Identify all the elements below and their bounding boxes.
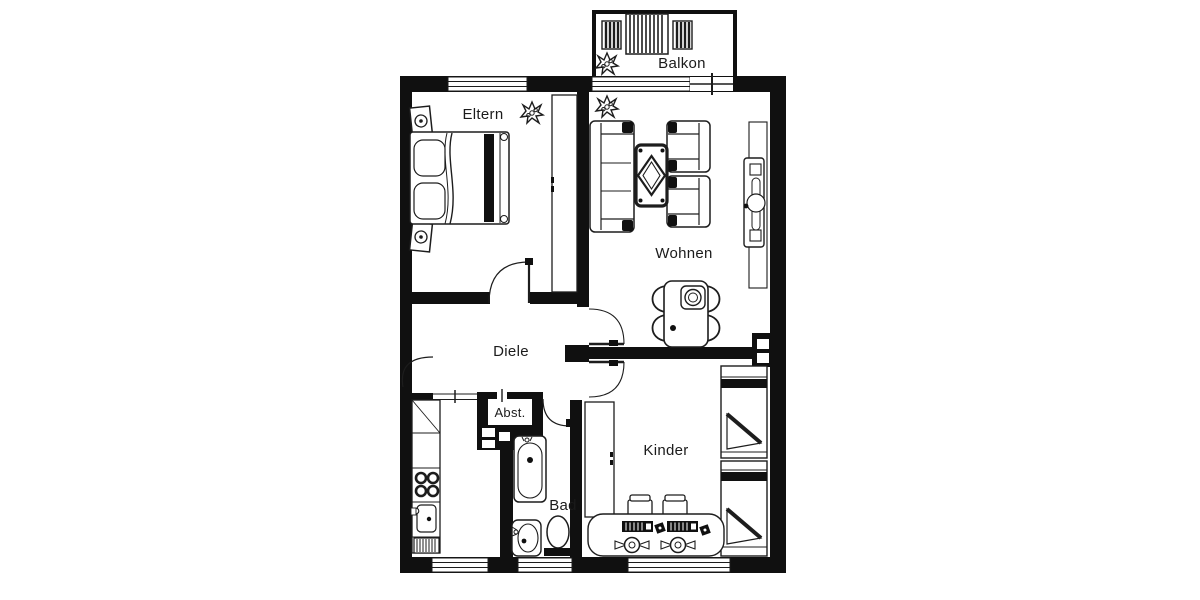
floorplan-drawing: Balkon bbox=[0, 0, 1200, 600]
window-kueche bbox=[432, 558, 488, 572]
balcony-table bbox=[626, 14, 668, 54]
speaker-icon bbox=[410, 222, 433, 252]
window-bad bbox=[518, 558, 572, 572]
room-kinder: Kinder bbox=[585, 366, 767, 556]
armchair bbox=[667, 176, 710, 227]
wardrobe bbox=[551, 95, 577, 292]
dish-rack bbox=[414, 538, 439, 553]
washbasin bbox=[512, 520, 541, 556]
floorplan: Balkon bbox=[0, 0, 1200, 600]
balcony-chair-right bbox=[673, 21, 692, 49]
window-wohnen bbox=[592, 77, 690, 91]
plant-icon bbox=[521, 102, 543, 123]
room-label-bad: Bad bbox=[549, 497, 577, 514]
armchair bbox=[667, 121, 710, 172]
kinder-bed-2 bbox=[721, 461, 767, 556]
keyboard-icon bbox=[667, 521, 698, 532]
room-wohnen: Wohnen bbox=[590, 96, 767, 347]
door-bad bbox=[543, 399, 574, 427]
room-kueche bbox=[411, 400, 440, 553]
door-kinder bbox=[589, 360, 624, 397]
sofa bbox=[590, 121, 634, 232]
room-diele: Diele bbox=[493, 343, 529, 360]
double-bed bbox=[410, 132, 509, 224]
toilet bbox=[544, 516, 572, 556]
plant-icon bbox=[596, 53, 618, 74]
door-eltern bbox=[489, 258, 533, 303]
coffee-table bbox=[636, 145, 667, 206]
room-eltern: Eltern bbox=[410, 95, 577, 292]
door-wohnen bbox=[589, 309, 624, 346]
plant-icon bbox=[596, 96, 618, 117]
balcony-chair-left bbox=[602, 21, 621, 49]
sideboard-hifi bbox=[744, 122, 767, 288]
window-kinder bbox=[628, 558, 730, 572]
keyboard-icon bbox=[622, 521, 653, 532]
room-label-balkon: Balkon bbox=[658, 55, 706, 72]
room-label-kinder: Kinder bbox=[643, 442, 688, 459]
kinder-wardrobe bbox=[585, 402, 614, 517]
room-bad: Bad bbox=[512, 436, 577, 556]
window-eltern bbox=[448, 77, 527, 91]
room-label-abst: Abst. bbox=[494, 405, 525, 420]
kinder-bed-1 bbox=[721, 366, 767, 458]
room-label-diele: Diele bbox=[493, 343, 529, 360]
bathtub bbox=[514, 436, 546, 502]
balcony: Balkon bbox=[592, 10, 737, 76]
dining-set bbox=[653, 281, 720, 347]
room-label-wohnen: Wohnen bbox=[655, 245, 712, 262]
room-label-eltern: Eltern bbox=[463, 106, 504, 123]
